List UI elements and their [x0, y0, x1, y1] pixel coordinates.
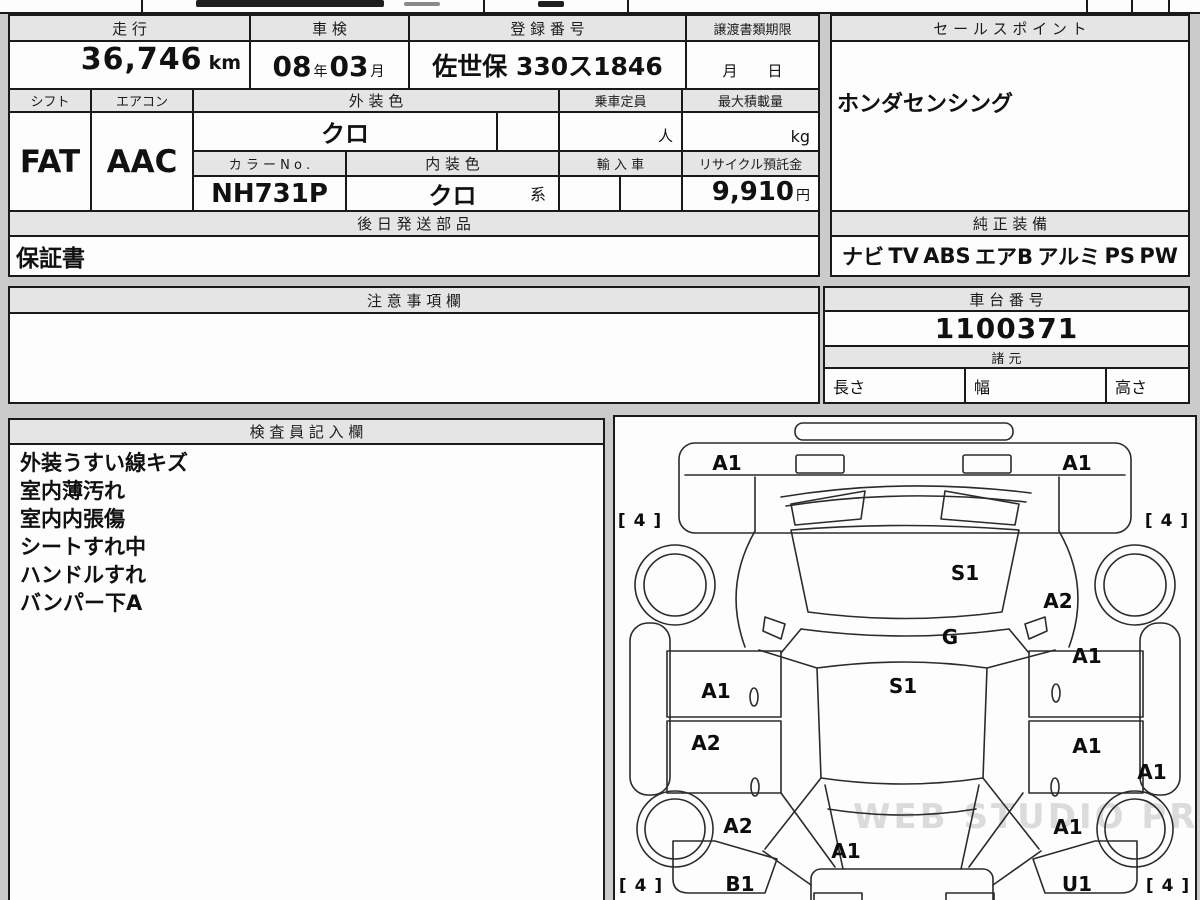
damage-code-tire-rear-right: [ 4 ]	[1146, 876, 1190, 896]
equipment-item: PW	[1139, 244, 1178, 268]
mileage-header: 走 行	[10, 16, 249, 40]
shift-value: FAT	[10, 113, 90, 210]
divider	[1168, 0, 1170, 12]
genuine-equipment-header: 純 正 装 備	[832, 212, 1188, 235]
capacity-header: 乗車定員	[560, 90, 681, 111]
damage-code-roof: S1	[889, 674, 917, 698]
notes-box: 注 意 事 項 欄	[8, 286, 820, 404]
damage-code-front-bumper-left: A1	[712, 451, 741, 475]
max-load-unit: kg	[791, 127, 810, 146]
capacity-value: 人	[560, 113, 681, 150]
later-parts-value: 保証書	[10, 237, 818, 275]
later-parts-header: 後 日 発 送 部 品	[10, 212, 818, 235]
exterior-color-value: クロ	[194, 113, 496, 150]
damage-code-tire-front-right: [ 4 ]	[1145, 511, 1189, 531]
interior-color-suffix: 系	[530, 181, 546, 205]
inspector-note-line: バンパー下A	[20, 589, 593, 617]
mileage-number: 36,746	[81, 42, 203, 77]
aircon-value: AAC	[92, 113, 192, 210]
genuine-equipment-value: ナビTVABSエアBアルミPSPW	[832, 237, 1188, 275]
cropped-text-artifact	[538, 1, 564, 7]
inspector-notes-body: 外装うすい線キズ室内薄汚れ室内内張傷シートすれ中ハンドルすれバンパー下A	[10, 445, 603, 900]
registration-header: 登 録 番 号	[410, 16, 685, 40]
equipment-item: ABS	[923, 244, 970, 268]
import-header: 輸 入 車	[560, 152, 681, 175]
shift-header: シフト	[10, 90, 90, 111]
inspector-box: 検 査 員 記 入 欄 外装うすい線キズ室内薄汚れ室内内張傷シートすれ中ハンドル…	[8, 418, 605, 900]
shaken-year-unit: 年	[314, 61, 328, 81]
auction-sheet: 走 行 車 検 登 録 番 号 譲渡書類期限 36,746 km 08 年 03…	[0, 0, 1200, 900]
chassis-header: 車 台 番 号	[825, 288, 1188, 310]
cropped-top-row	[0, 0, 1200, 14]
interior-color-text: クロ	[429, 177, 477, 210]
sales-point-header: セ ー ル ス ポ イ ン ト	[832, 16, 1188, 40]
damage-code-right-front-door: A1	[1072, 644, 1101, 668]
damage-code-right-quarter: A1	[1053, 815, 1082, 839]
damage-code-front-bumper-right: A1	[1062, 451, 1091, 475]
damage-code-right-rear-corner: U1	[1062, 872, 1092, 896]
length-cell: 長さ	[825, 369, 964, 402]
inspector-note-line: 室内薄汚れ	[20, 477, 593, 505]
divider	[627, 0, 629, 12]
divider	[1131, 0, 1133, 12]
interior-color-header: 内 装 色	[347, 152, 558, 175]
shaken-year: 08	[273, 50, 312, 83]
divider	[141, 0, 143, 12]
spec-table: 走 行 車 検 登 録 番 号 譲渡書類期限 36,746 km 08 年 03…	[8, 14, 820, 277]
damage-code-right-front-fender: A2	[1043, 589, 1072, 613]
shaken-header: 車 検	[251, 16, 408, 40]
damage-code-tailgate: A1	[831, 839, 860, 863]
recycle-value: 9,910 円	[683, 177, 818, 210]
length-label: 長さ	[833, 374, 865, 398]
damage-code-tire-front-left: [ 4 ]	[618, 511, 662, 531]
recycle-unit: 円	[796, 185, 810, 205]
dimensions-header: 諸 元	[825, 347, 1188, 367]
damage-code-left-rear-door: A2	[691, 731, 720, 755]
damage-code-right-sill: A1	[1137, 760, 1166, 784]
equipment-item: PS	[1105, 244, 1136, 268]
inspector-note-line: ハンドルすれ	[20, 561, 593, 589]
diagram-canvas: WEB STUDIO PRO	[615, 417, 1195, 900]
transfer-docs-value: 月 日	[687, 42, 818, 88]
inspector-header: 検 査 員 記 入 欄	[10, 420, 603, 443]
transfer-docs-header: 譲渡書類期限	[687, 16, 818, 40]
shaken-month-unit: 月	[370, 61, 384, 81]
inspector-note-line: 室内内張傷	[20, 505, 593, 533]
registration-value: 佐世保 330ス1846	[410, 42, 685, 88]
width-cell: 幅	[966, 369, 1105, 402]
equipment-item: TV	[888, 244, 919, 268]
inspector-note-line: シートすれ中	[20, 533, 593, 561]
cropped-text-artifact	[404, 2, 440, 6]
damage-code-tire-rear-left: [ 4 ]	[619, 876, 663, 896]
damage-code-left-rear-corner: B1	[725, 872, 754, 896]
aircon-header: エアコン	[92, 90, 192, 111]
damage-code-right-rear-door: A1	[1072, 734, 1101, 758]
color-no-header: カ ラ ー N o .	[194, 152, 345, 175]
capacity-unit: 人	[658, 125, 673, 146]
damage-code-left-front-door: A1	[701, 679, 730, 703]
divider	[483, 0, 485, 12]
sales-point-box: セ ー ル ス ポ イ ン ト ホンダセンシング 純 正 装 備 ナビTVABS…	[830, 14, 1190, 277]
notes-header: 注 意 事 項 欄	[10, 288, 818, 312]
shaken-month: 03	[330, 50, 369, 83]
damage-code-left-quarter: A2	[723, 814, 752, 838]
recycle-number: 9,910	[712, 177, 794, 207]
height-cell: 高さ	[1107, 369, 1188, 402]
max-load-header: 最大積載量	[683, 90, 818, 111]
chassis-value: 1100371	[825, 312, 1188, 345]
max-load-value: kg	[683, 113, 818, 150]
equipment-item: ナビ	[842, 241, 884, 271]
car-outline-drawing	[615, 417, 1195, 900]
mileage-unit: km	[209, 52, 241, 74]
exterior-color-extra-cell	[498, 113, 558, 150]
import-cell-1	[560, 177, 619, 210]
diagram-box: WEB STUDIO PRO	[613, 415, 1197, 900]
notes-body	[10, 314, 818, 402]
recycle-header: リサイクル預託金	[683, 152, 818, 175]
chassis-box: 車 台 番 号 1100371 諸 元 長さ 幅 高さ	[823, 286, 1190, 404]
damage-code-windshield: S1	[951, 561, 979, 585]
import-cell-2	[621, 177, 681, 210]
mileage-value: 36,746 km	[10, 42, 249, 88]
equipment-item: エアB	[975, 241, 1033, 271]
height-label: 高さ	[1115, 374, 1147, 398]
exterior-color-header: 外 装 色	[194, 90, 558, 111]
shaken-value: 08 年 03 月	[251, 42, 408, 88]
equipment-item: アルミ	[1037, 241, 1100, 271]
divider	[1086, 0, 1088, 12]
inspector-note-line: 外装うすい線キズ	[20, 449, 593, 477]
sales-point-value: ホンダセンシング	[832, 42, 1188, 210]
interior-color-value: クロ 系	[347, 177, 558, 210]
damage-code-cowl: G	[942, 625, 958, 649]
width-label: 幅	[974, 374, 990, 398]
color-no-value: NH731P	[194, 177, 345, 210]
cropped-text-artifact	[196, 0, 384, 7]
